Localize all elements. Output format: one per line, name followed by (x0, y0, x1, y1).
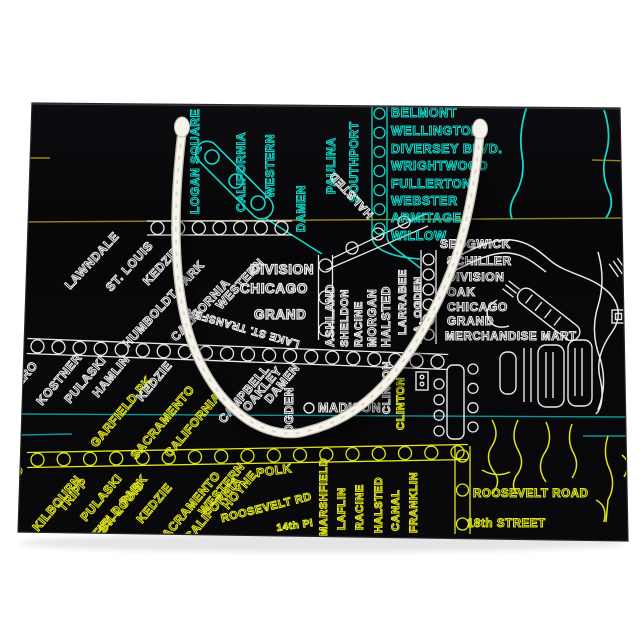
street-label: ARMITAGE (391, 211, 462, 225)
street-label: OGDEN (282, 387, 296, 434)
street-label: HALSTED (373, 477, 385, 533)
street-label: GRAND (254, 307, 307, 322)
street-label: RACINE (353, 301, 365, 347)
street-label: RACINE (354, 484, 366, 530)
street-label: DAMEN (294, 185, 308, 232)
street-label: WEBSTER (391, 194, 458, 208)
street-label: 18th STREET (467, 518, 546, 530)
street-label: WILLOW (391, 229, 447, 243)
street-label: CANAL (390, 490, 402, 532)
street-label: GRAND (447, 314, 494, 328)
rope-knot-left (175, 117, 190, 137)
street-label: FULLERTON (391, 177, 472, 191)
street-label: FRANKLIN (408, 472, 420, 533)
street-label: CALIFORNIA (234, 132, 248, 212)
street-label: MORGAN (365, 289, 379, 347)
street-label: LAFLIN (336, 487, 348, 530)
rope-knot-right (473, 119, 488, 139)
street-label: WELLINGTON (391, 124, 481, 138)
street-label: ASHLAND (323, 284, 337, 347)
street-label: BELMONT (391, 106, 457, 120)
product-photo: LOGAN SQUARECALIFORNIAWESTERNDAMENPAULIN… (0, 0, 644, 644)
street-label: SHELDON (339, 289, 351, 347)
street-label: ROOSEVELT ROAD (473, 488, 589, 500)
street-label: WESTERN (263, 134, 277, 198)
street-label: MARSHFIELD (318, 458, 330, 536)
gift-bag-illustration: LOGAN SQUARECALIFORNIAWESTERNDAMENPAULIN… (0, 0, 644, 644)
street-label: CHICAGO (447, 300, 508, 314)
street-label: HALSTED (379, 286, 393, 347)
street-label: LARRABEE (397, 269, 409, 335)
street-label: SEDGWICK (440, 237, 511, 251)
street-label: MERCHANDISE MART (445, 331, 577, 343)
street-label: CHICAGO (240, 281, 308, 296)
